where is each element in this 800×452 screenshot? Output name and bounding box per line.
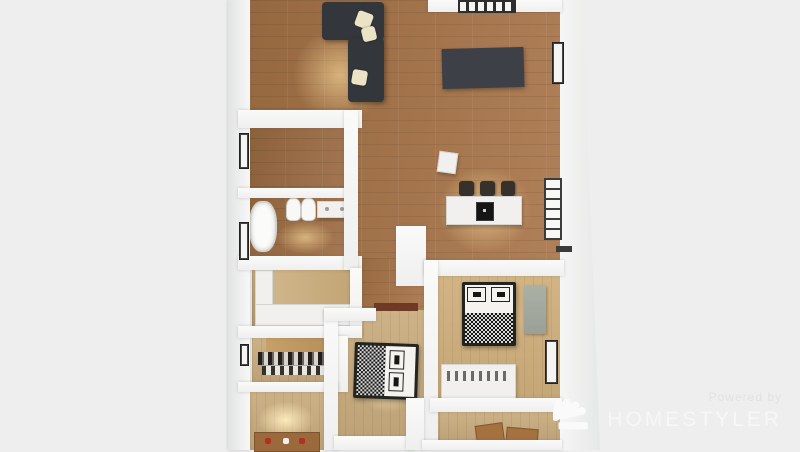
toilet	[286, 198, 301, 221]
window-right-bedroom	[545, 340, 558, 384]
bar-stool	[459, 181, 474, 196]
window-right-slot	[556, 246, 572, 252]
bed-pillow	[388, 372, 404, 392]
wardrobe-panel	[524, 286, 546, 334]
sofa-pillow	[351, 69, 368, 86]
entry-rug	[374, 303, 418, 311]
wall-study-bottom	[238, 188, 358, 198]
shelf-items	[447, 371, 509, 381]
window-left-3	[240, 344, 249, 366]
bar-stool	[501, 181, 515, 196]
dining-table-small	[254, 432, 320, 452]
watermark: Powered by HOMESTYLER	[553, 390, 782, 432]
bed-blanket-speckle	[356, 345, 386, 396]
wall-bottom-right-strip	[422, 440, 562, 450]
toilet	[301, 198, 316, 221]
bar-stool	[480, 181, 495, 196]
wall-closet-bottom	[238, 382, 338, 392]
window-right-upper	[552, 42, 564, 84]
white-speaker-box	[437, 151, 459, 174]
wall-living-divider	[344, 110, 358, 270]
wall-bedroom-middle-left	[324, 310, 338, 450]
wall-bedroom-right-left	[424, 260, 438, 440]
bed-pillow	[389, 350, 405, 370]
bed-pillow	[491, 287, 510, 302]
table-placemat-red	[299, 438, 305, 444]
dark-area-rug	[441, 47, 524, 89]
double-bed-middle	[353, 342, 419, 400]
sink-faucet	[325, 207, 329, 211]
table-placemat-red	[265, 438, 271, 444]
wall-bedroom-right-top	[424, 260, 564, 276]
bed-pillow	[467, 287, 486, 302]
table-plate-white	[283, 438, 289, 444]
dresser-shelf	[441, 364, 516, 400]
window-left-1	[239, 133, 249, 169]
double-bed-right	[462, 282, 516, 346]
wall-bedroom-middle-top	[324, 308, 376, 321]
homestyler-fan-icon	[553, 392, 597, 432]
floorplan-render: Powered by HOMESTYLER	[0, 0, 800, 450]
watermark-text: Powered by HOMESTYLER	[607, 390, 782, 432]
window-right-kitchen-lattice	[544, 178, 562, 240]
light-glow-bathroom	[265, 215, 345, 260]
window-top-grid	[458, 0, 516, 13]
wall-bedroom-middle-bottom	[334, 436, 414, 450]
outer-wall-right	[560, 0, 600, 450]
shoe-rack	[262, 366, 330, 375]
bathtub	[249, 201, 277, 252]
cooktop-knob	[483, 209, 486, 212]
watermark-powered-by: Powered by	[607, 390, 782, 404]
utility-wood-counter-top	[271, 270, 349, 304]
window-left-2	[239, 222, 249, 260]
cooktop	[476, 202, 494, 221]
bed-blanket-speckle	[465, 313, 513, 343]
wall-bedroom-right-bottom	[430, 398, 562, 412]
closet-clothes-rail	[258, 352, 330, 365]
watermark-brand: HOMESTYLER	[607, 408, 782, 432]
wall-hall-column	[396, 226, 426, 286]
